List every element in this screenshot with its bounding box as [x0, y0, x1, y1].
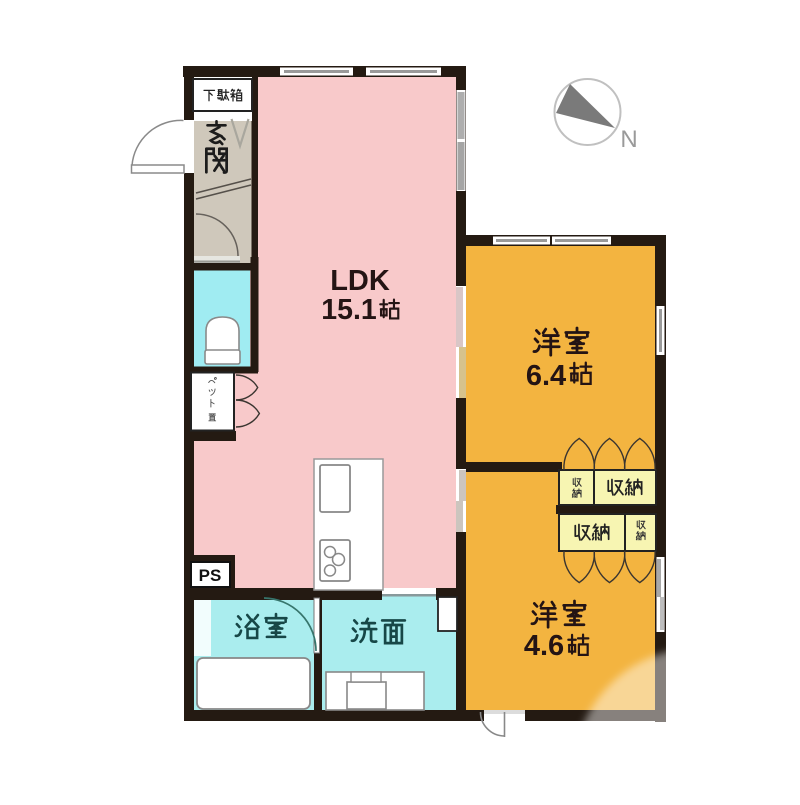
svg-text:6.4: 6.4 [526, 360, 566, 392]
svg-text:15.1: 15.1 [321, 294, 377, 326]
svg-text:N: N [620, 126, 637, 153]
svg-text:4.6: 4.6 [524, 630, 564, 662]
svg-text:LDK: LDK [330, 265, 390, 297]
svg-text:PS: PS [199, 566, 222, 585]
